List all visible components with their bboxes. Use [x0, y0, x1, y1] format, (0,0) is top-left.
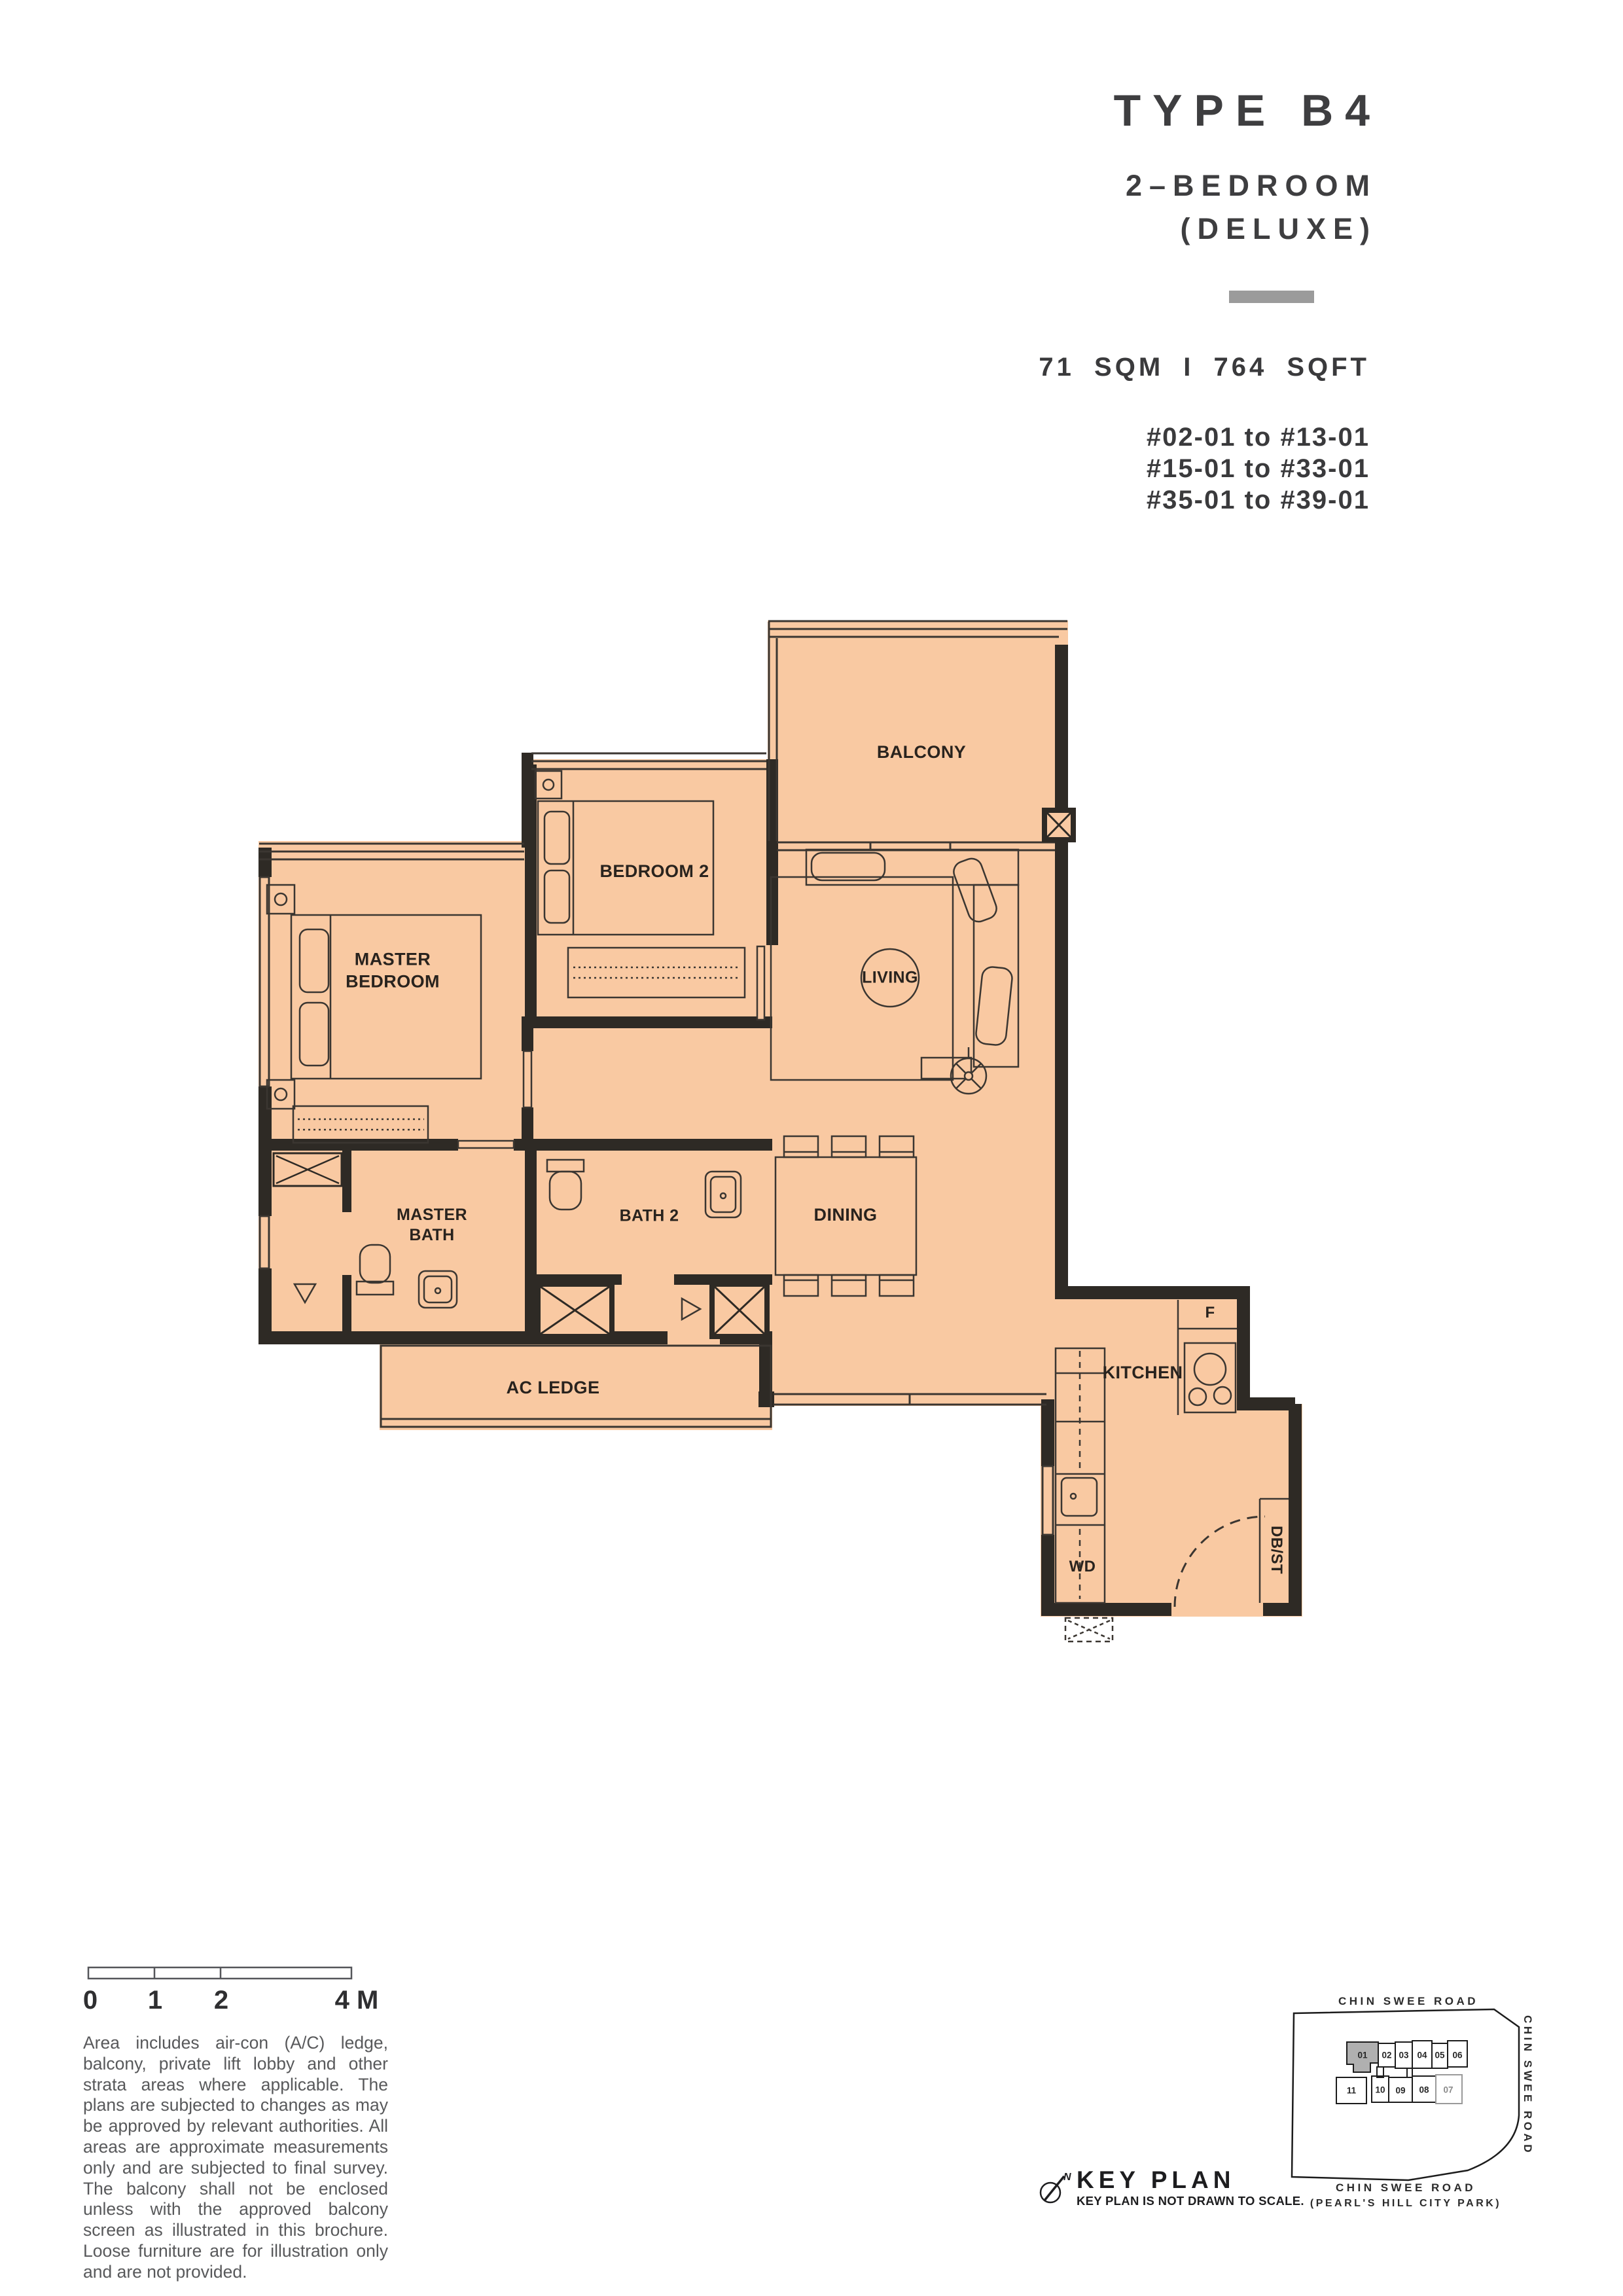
stack-07: 07 [1443, 2085, 1453, 2095]
compass-north-label: N [1063, 2172, 1071, 2183]
scale-tick-4m: 4 M [335, 1986, 379, 2015]
scale-tick-1: 1 [148, 1986, 162, 2015]
stack-04: 04 [1417, 2051, 1427, 2060]
room-label-dining: DINING [814, 1204, 878, 1227]
master-bath-door [458, 1141, 514, 1148]
stack-05: 05 [1435, 2051, 1444, 2060]
bedroom-subtitle: 2–BEDROOM [1126, 169, 1377, 203]
stack-01: 01 [1357, 2051, 1367, 2060]
stack-06: 06 [1452, 2051, 1462, 2060]
scale-bar [88, 1967, 351, 1979]
keyplan-subtitle: KEY PLAN IS NOT DRAWN TO SCALE. [1077, 2194, 1304, 2208]
road-label-park: (PEARL'S HILL CITY PARK) [1310, 2198, 1501, 2210]
stack-09: 09 [1395, 2086, 1405, 2096]
stack-10: 10 [1375, 2085, 1385, 2095]
stack-03: 03 [1399, 2051, 1408, 2060]
deluxe-subtitle: (DELUXE) [1181, 212, 1378, 246]
bedroom2-door [757, 946, 764, 1020]
header-block: TYPE B4 2–BEDROOM (DELUXE) 71 SQM I 764 … [1039, 85, 1370, 516]
room-label-living: LIVING [862, 967, 918, 988]
accent-bar [1229, 291, 1314, 303]
unit-range-text: #02-01 to #13-01 #15-01 to #33-01 #35-01… [1147, 422, 1370, 516]
master-bedroom-door [524, 1051, 531, 1107]
room-label-bath2: BATH 2 [620, 1206, 679, 1226]
road-label-bottom: CHIN SWEE ROAD [1336, 2181, 1476, 2195]
room-label-balcony: BALCONY [877, 742, 966, 764]
stack-11: 11 [1347, 2086, 1356, 2096]
label-washer-dryer: WD [1069, 1557, 1096, 1577]
room-label-master-bedroom: MASTER BEDROOM [346, 948, 440, 993]
room-label-master-bath: MASTER BATH [397, 1205, 467, 1246]
road-label-right: CHIN SWEE ROAD [1521, 2015, 1534, 2155]
unit-footprint [259, 620, 1302, 1617]
page: { "header": { "type_label": "TYPE B4", "… [0, 0, 1623, 2296]
disclaimer-text: Area includes air-con (A/C) ledge, balco… [83, 2033, 388, 2283]
page-art [0, 0, 1623, 2296]
page-title: TYPE B4 [1114, 85, 1382, 136]
road-label-top: CHIN SWEE ROAD [1338, 1995, 1478, 2008]
room-label-ac-ledge: AC LEDGE [507, 1377, 600, 1399]
stack-02: 02 [1382, 2051, 1391, 2060]
room-label-bedroom2: BEDROOM 2 [599, 861, 709, 883]
stack-08: 08 [1419, 2085, 1429, 2095]
area-text: 71 SQM I 764 SQFT [1039, 353, 1370, 382]
scale-tick-0: 0 [83, 1986, 98, 2015]
keyplan-title: KEY PLAN [1077, 2166, 1235, 2194]
label-db-st: DB/ST [1266, 1526, 1286, 1574]
room-label-kitchen: KITCHEN [1103, 1362, 1183, 1384]
floorplan [259, 620, 1302, 1641]
label-fridge: F [1205, 1303, 1215, 1323]
scale-tick-2: 2 [214, 1986, 228, 2015]
compass-icon [1041, 2176, 1064, 2202]
